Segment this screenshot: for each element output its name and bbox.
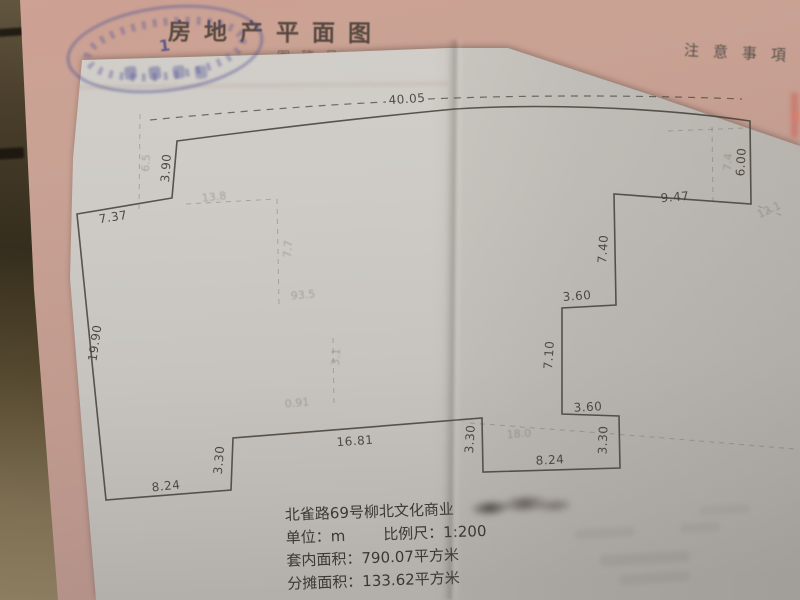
ghost-label: 3.1 [329, 348, 343, 366]
dimension-label: 6.00 [733, 147, 748, 176]
inner-area-label: 套内面积： [286, 549, 362, 570]
dimension-label: 40.05 [388, 91, 426, 108]
address-text: 北雀路69号柳北文化商业 [285, 500, 455, 524]
plan-outline-path [77, 107, 751, 500]
dimension-label: 8.24 [535, 452, 564, 467]
dimension-label: 3.90 [158, 153, 174, 183]
ghost-label: 7.7 [281, 240, 295, 258]
unit-value: m [330, 527, 345, 545]
ghost-lines [139, 114, 795, 449]
photo-of-floor-plan-document: 房地产平面图 图稿号 注意事項 1 [0, 0, 800, 600]
dimension-label: 3.30 [462, 424, 478, 454]
dimension-label: 3.60 [573, 399, 602, 414]
dimension-label: 16.81 [336, 433, 374, 450]
apportioned-area-label: 分摊面积： [287, 572, 363, 593]
dimension-label: 7.10 [541, 340, 557, 370]
dimension-label: 3.30 [596, 425, 611, 454]
scale-label: 比例尺： [383, 523, 444, 543]
spacer [345, 540, 383, 541]
dimension-label: 8.24 [151, 478, 181, 495]
ghost-label: 13.8 [201, 189, 227, 204]
ghost-label: 18.0 [506, 427, 531, 442]
dimension-label: 3.60 [562, 288, 592, 304]
unit-label: 单位： [285, 527, 331, 547]
dimension-label: 7.40 [595, 234, 611, 264]
ghost-label: 6.5 [139, 154, 153, 172]
dimension-label: 9.47 [660, 189, 690, 205]
ghost-label: 0.91 [284, 395, 310, 410]
dimension-label: 3.30 [211, 445, 227, 475]
ghost-label: 93.5 [290, 287, 316, 302]
red-edge-dot [794, 110, 798, 122]
